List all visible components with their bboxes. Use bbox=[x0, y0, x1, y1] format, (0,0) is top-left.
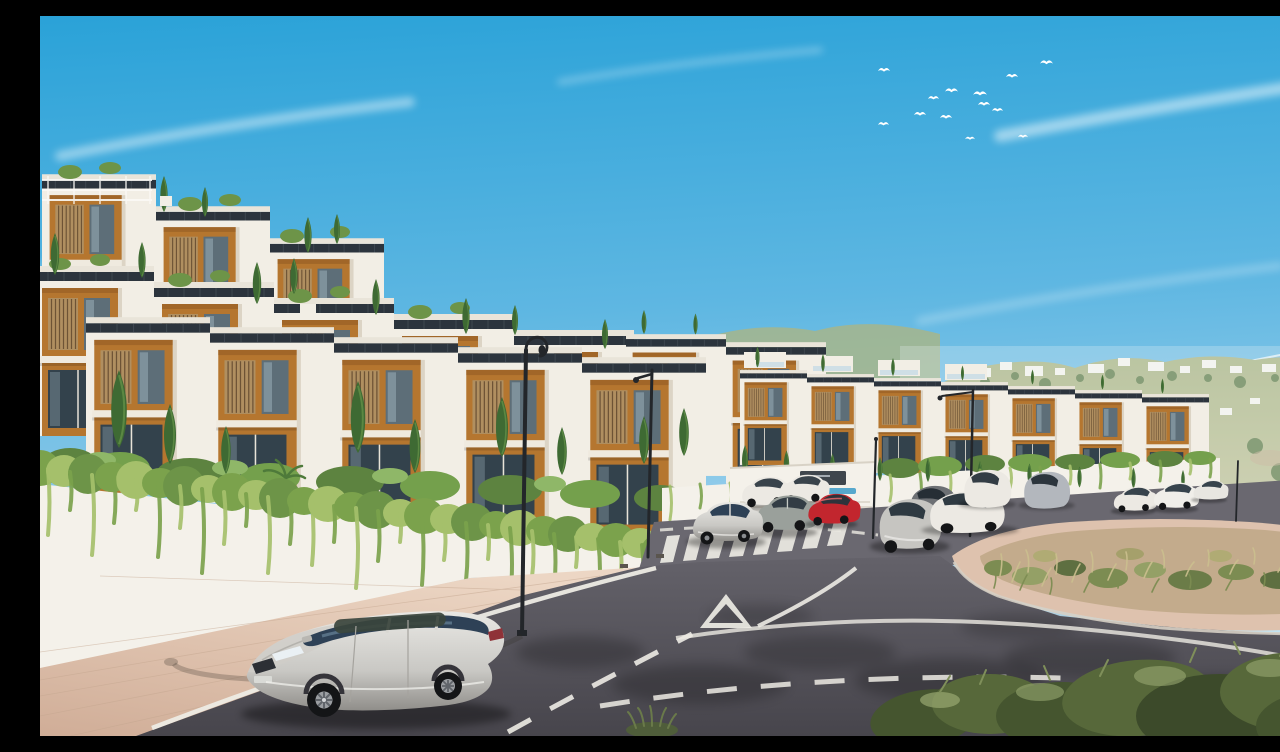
rear-wheel bbox=[434, 672, 462, 700]
roof-terrace-railing bbox=[42, 176, 152, 204]
townhouse-unit bbox=[807, 374, 874, 469]
front-wheel bbox=[307, 683, 341, 717]
townhouse-unit bbox=[740, 370, 807, 465]
architectural-rendering bbox=[40, 16, 1280, 736]
